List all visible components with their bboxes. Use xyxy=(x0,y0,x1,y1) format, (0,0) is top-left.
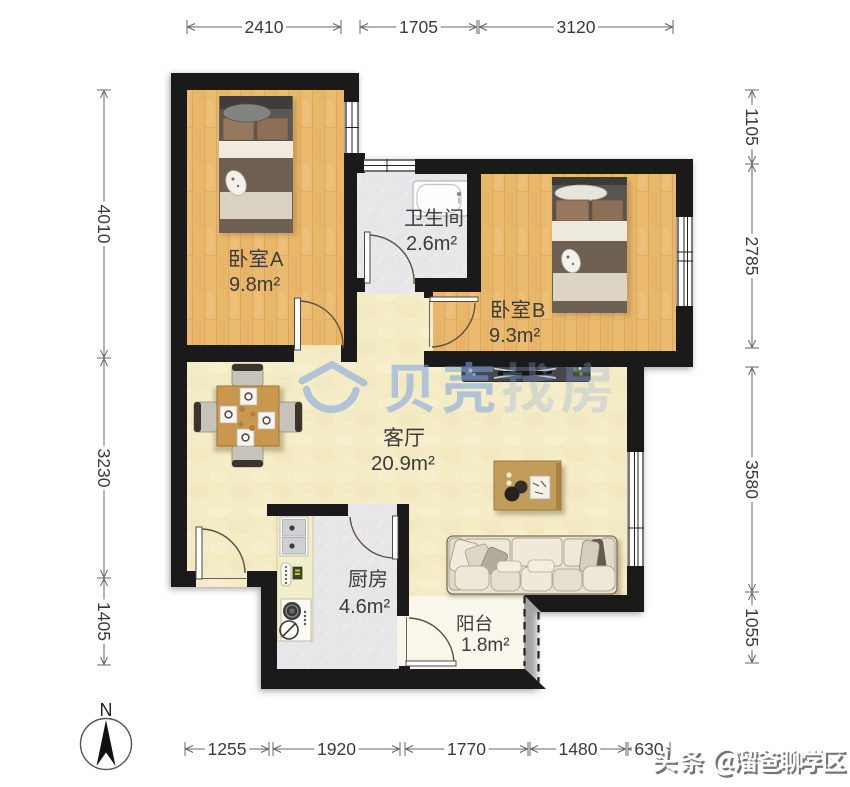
svg-text:20.9m²: 20.9m² xyxy=(371,452,435,475)
svg-text:9.3m²: 9.3m² xyxy=(489,325,540,347)
svg-text:4.6m²: 4.6m² xyxy=(339,596,390,618)
svg-text:2.6m²: 2.6m² xyxy=(406,233,457,255)
svg-text:1.8m²: 1.8m² xyxy=(461,635,510,656)
svg-text:3580: 3580 xyxy=(742,460,762,499)
svg-text:1920: 1920 xyxy=(317,739,356,759)
svg-text:N: N xyxy=(100,700,113,720)
svg-text:A: A xyxy=(270,249,284,271)
svg-text:3230: 3230 xyxy=(94,449,114,488)
svg-text:B: B xyxy=(532,300,545,322)
svg-text:1705: 1705 xyxy=(399,17,438,37)
svg-text:2785: 2785 xyxy=(742,237,762,276)
svg-text:1055: 1055 xyxy=(742,608,762,647)
svg-text:1255: 1255 xyxy=(208,739,247,759)
svg-text:1105: 1105 xyxy=(742,108,762,146)
svg-text:4010: 4010 xyxy=(94,205,114,244)
svg-text:3120: 3120 xyxy=(557,17,596,37)
svg-text:1480: 1480 xyxy=(559,739,598,759)
svg-text:9.8m²: 9.8m² xyxy=(229,274,280,296)
svg-text:2410: 2410 xyxy=(245,17,284,37)
svg-text:1405: 1405 xyxy=(94,602,114,641)
svg-text:1770: 1770 xyxy=(447,739,486,759)
